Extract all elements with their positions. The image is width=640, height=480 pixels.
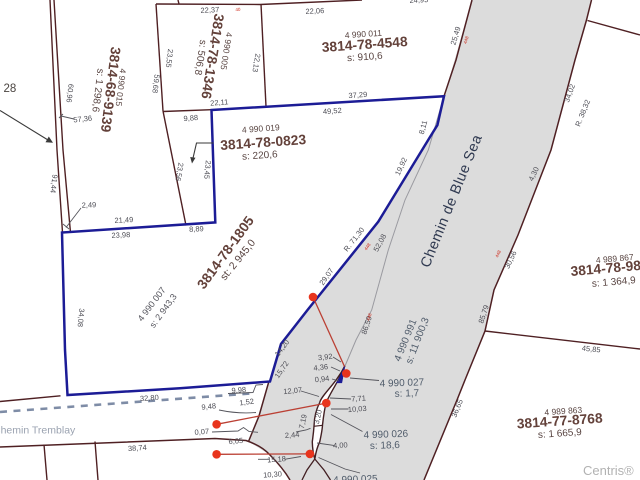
svg-text:10,03: 10,03 — [348, 404, 367, 414]
svg-text:32,80: 32,80 — [140, 393, 159, 403]
svg-text:28: 28 — [4, 83, 17, 95]
svg-text:6,05: 6,05 — [228, 436, 243, 446]
svg-text:34,08: 34,08 — [76, 308, 87, 327]
svg-text:21,49: 21,49 — [114, 215, 133, 225]
svg-text:s: 18,6: s: 18,6 — [370, 440, 401, 452]
svg-text:9,88: 9,88 — [183, 113, 198, 123]
svg-text:22,06: 22,06 — [305, 6, 324, 16]
svg-text:9,48: 9,48 — [201, 401, 216, 411]
svg-text:10,30: 10,30 — [263, 469, 282, 479]
svg-text:37,29: 37,29 — [348, 90, 367, 100]
svg-text:8,89: 8,89 — [189, 224, 204, 234]
svg-text:2,44: 2,44 — [285, 430, 300, 440]
svg-text:40: 40 — [235, 7, 241, 12]
svg-text:4 990 026: 4 990 026 — [363, 429, 408, 442]
svg-text:4 990 025: 4 990 025 — [333, 474, 378, 480]
svg-text:22,37: 22,37 — [200, 5, 219, 15]
svg-text:4,36: 4,36 — [313, 362, 328, 372]
svg-text:7,71: 7,71 — [351, 394, 366, 404]
svg-text:23,98: 23,98 — [111, 230, 130, 240]
svg-text:9,98: 9,98 — [231, 385, 246, 395]
svg-text:Centris®: Centris® — [583, 463, 634, 478]
svg-text:23,45: 23,45 — [202, 160, 213, 179]
svg-text:4,00: 4,00 — [333, 440, 348, 450]
svg-text:38,74: 38,74 — [128, 443, 147, 453]
svg-text:2,49: 2,49 — [81, 200, 96, 210]
svg-text:Chemin Tremblay: Chemin Tremblay — [0, 425, 76, 437]
svg-text:49,52: 49,52 — [323, 106, 342, 116]
svg-text:s: 1,7: s: 1,7 — [394, 388, 419, 400]
svg-text:22,11: 22,11 — [210, 97, 229, 108]
svg-text:0,07: 0,07 — [194, 427, 209, 437]
svg-text:3,92: 3,92 — [318, 352, 333, 362]
svg-text:15,18: 15,18 — [267, 454, 286, 464]
svg-text:0,94: 0,94 — [314, 374, 329, 384]
